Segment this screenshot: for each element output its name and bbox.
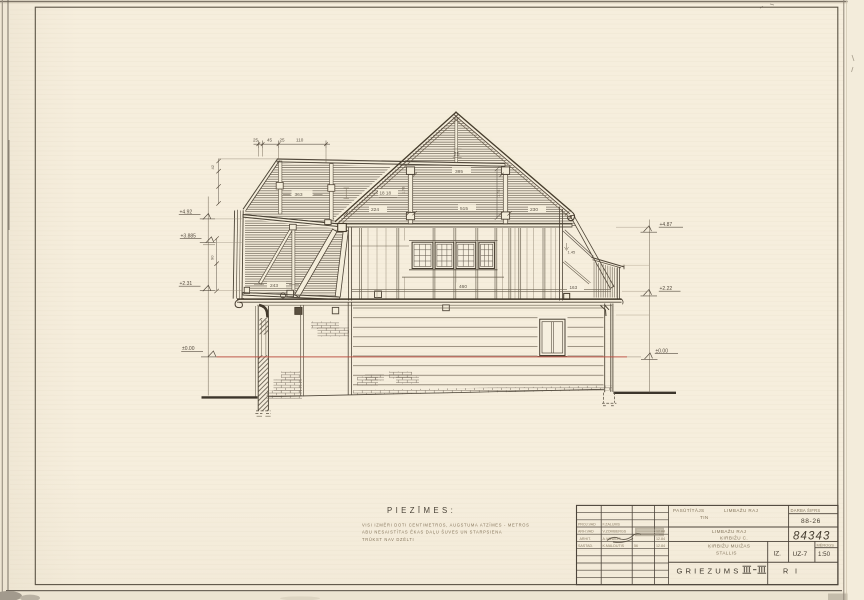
svg-text:PROJ.VAD: PROJ.VAD (578, 523, 596, 527)
svg-text:ARHIT.: ARHIT. (580, 537, 592, 541)
svg-text:88-26: 88-26 (801, 518, 821, 525)
svg-text:45: 45 (267, 138, 273, 143)
svg-text:ABU NESAISTĪTAS ĒKAS DAĻU ŠUVE: ABU NESAISTĪTAS ĒKAS DAĻU ŠUVES UN STARP… (362, 530, 502, 535)
svg-text:12.84: 12.84 (656, 544, 665, 548)
svg-text:230: 230 (530, 207, 538, 213)
svg-text:110: 110 (296, 138, 304, 143)
svg-text:25: 25 (253, 138, 259, 143)
svg-text:F.ZALUMS: F.ZALUMS (603, 523, 621, 527)
svg-text:515: 515 (460, 206, 468, 212)
svg-text:25: 25 (454, 152, 460, 158)
svg-text:1.45: 1.45 (568, 250, 577, 255)
svg-text:VISI IZMĒRI DOTI CENTIMETROS,: VISI IZMĒRI DOTI CENTIMETROS, AUGSTUMA A… (362, 522, 530, 527)
svg-text:V.ZOMBERGS: V.ZOMBERGS (603, 530, 627, 534)
svg-text:ARH.VAD: ARH.VAD (578, 530, 594, 534)
svg-text:84343: 84343 (793, 531, 830, 543)
svg-text:SASTAD.: SASTAD. (578, 544, 593, 548)
svg-text:385: 385 (455, 169, 463, 175)
svg-text:163: 163 (570, 285, 578, 290)
svg-text:1.76: 1.76 (497, 190, 501, 197)
svg-text:LIMBAŽU RAJ: LIMBAŽU RAJ (724, 506, 758, 513)
svg-text:IZ.: IZ. (774, 551, 782, 558)
svg-text:1:50: 1:50 (818, 551, 831, 558)
svg-text:ĶIRBIŽU MUIŽAS: ĶIRBIŽU MUIŽAS (708, 542, 750, 549)
svg-text:363: 363 (295, 192, 303, 198)
svg-text:460: 460 (459, 284, 467, 290)
svg-text:18 18: 18 18 (380, 191, 392, 196)
svg-text:90: 90 (210, 255, 215, 260)
svg-text:12.84: 12.84 (656, 537, 665, 541)
svg-text:56: 56 (634, 544, 638, 548)
svg-text:42: 42 (210, 164, 215, 169)
svg-text:R I: R I (783, 566, 799, 575)
svg-text:GRIEZUMS: GRIEZUMS (677, 566, 742, 575)
svg-text:1.78: 1.78 (402, 187, 406, 194)
svg-text:UZ-7: UZ-7 (793, 551, 808, 558)
svg-text:ĶIRBIŽU C.: ĶIRBIŽU C. (720, 533, 748, 540)
svg-text:TRŪKST NAV DZĒLTI: TRŪKST NAV DZĒLTI (362, 537, 414, 542)
svg-text:25: 25 (280, 138, 286, 143)
svg-text:224: 224 (371, 207, 379, 213)
svg-text:LIMBAŽU RAJ: LIMBAŽU RAJ (712, 527, 746, 534)
svg-text:K.MALDUTIS: K.MALDUTIS (603, 544, 625, 548)
svg-text:PASŪTĪTĀJS: PASŪTĪTĀJS (673, 507, 704, 513)
svg-text:243: 243 (270, 283, 278, 289)
svg-text:TIN: TIN (700, 515, 709, 520)
svg-text:STALLIS: STALLIS (716, 551, 737, 556)
svg-text:DARBA ŠIFRS: DARBA ŠIFRS (791, 508, 821, 513)
svg-text:MĒROGS: MĒROGS (817, 542, 835, 547)
svg-text:PIEZĪMES:: PIEZĪMES: (387, 506, 456, 515)
